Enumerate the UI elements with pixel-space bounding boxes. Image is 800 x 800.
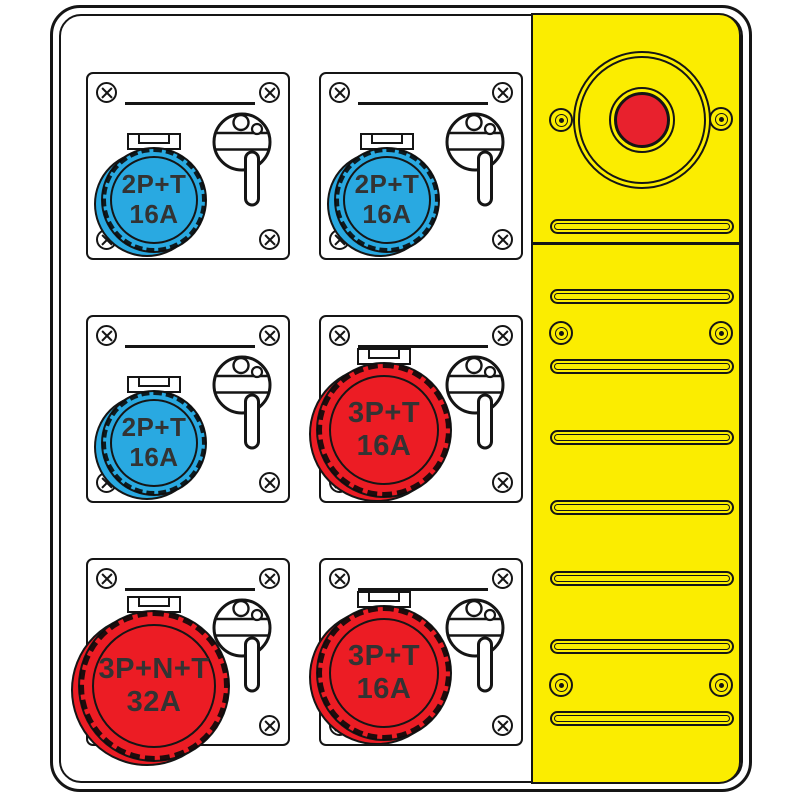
socket-face-label: 2P+T 16A — [343, 156, 431, 244]
vent-slot-inner — [554, 575, 730, 582]
cee-socket: 3P+T 16A — [316, 605, 452, 741]
plate-divider-line — [358, 102, 488, 105]
cee-socket: 2P+T 16A — [101, 390, 207, 496]
rivet-icon — [549, 321, 573, 345]
screw-icon — [96, 82, 117, 103]
socket-face-label: 3P+T 16A — [329, 375, 439, 485]
cee-socket: 3P+T 16A — [316, 362, 452, 498]
interlock-switch-icon — [207, 353, 277, 465]
vent-slot — [550, 430, 734, 445]
vent-slot-inner — [554, 293, 730, 300]
socket-module-top-left: 2P+T 16A — [86, 72, 290, 260]
vent-slot — [550, 500, 734, 515]
socket-face-label: 3P+T 16A — [329, 618, 439, 728]
vent-slot — [550, 571, 734, 586]
socket-rating-line2: 32A — [127, 686, 182, 719]
socket-rating-line2: 16A — [129, 200, 178, 230]
screw-icon — [259, 325, 280, 346]
screw-icon — [259, 568, 280, 589]
vent-slot — [550, 219, 734, 234]
socket-mount-tab-inner — [138, 135, 170, 144]
socket-rating-line1: 3P+N+T — [99, 653, 210, 686]
cee-socket: 2P+T 16A — [101, 147, 207, 253]
cee-socket: 2P+T 16A — [334, 147, 440, 253]
screw-icon — [492, 325, 513, 346]
socket-module-bottom-left: 3P+N+T 32A — [86, 558, 290, 746]
vent-slot-inner — [554, 504, 730, 511]
panel-divider-line — [533, 242, 739, 245]
interlock-switch-icon — [207, 110, 277, 222]
vent-slot — [550, 289, 734, 304]
vent-slot-inner — [554, 715, 730, 722]
screw-icon — [492, 229, 513, 250]
screw-icon — [259, 82, 280, 103]
cee-socket: 3P+N+T 32A — [78, 610, 230, 762]
socket-mount-tab-inner — [138, 378, 170, 387]
socket-face-label: 2P+T 16A — [110, 156, 198, 244]
plate-divider-line — [125, 588, 255, 591]
screw-icon — [492, 472, 513, 493]
screw-icon — [96, 325, 117, 346]
rivet-icon — [709, 107, 733, 131]
screw-icon — [329, 82, 350, 103]
rivet-icon — [709, 321, 733, 345]
socket-module-bottom-right: 3P+T 16A — [319, 558, 523, 746]
screw-icon — [259, 229, 280, 250]
socket-rating-line1: 2P+T — [355, 170, 420, 200]
socket-rating-line1: 3P+T — [348, 640, 420, 673]
socket-mount-tab-inner — [371, 135, 403, 144]
screw-icon — [492, 82, 513, 103]
socket-rating-line2: 16A — [357, 430, 412, 463]
screw-icon — [96, 568, 117, 589]
screw-icon — [492, 715, 513, 736]
socket-module-middle-right: 3P+T 16A — [319, 315, 523, 503]
vent-slot — [550, 359, 734, 374]
plate-divider-line — [125, 102, 255, 105]
vent-slot-inner — [554, 223, 730, 230]
vent-slot-inner — [554, 643, 730, 650]
screw-icon — [329, 325, 350, 346]
rivet-icon — [549, 108, 573, 132]
socket-module-top-right: 2P+T 16A — [319, 72, 523, 260]
socket-rating-line2: 16A — [129, 443, 178, 473]
socket-mount-tab-inner — [368, 593, 400, 602]
socket-rating-line1: 2P+T — [122, 170, 187, 200]
screw-icon — [259, 715, 280, 736]
vent-slot-inner — [554, 434, 730, 441]
socket-rating-line2: 16A — [357, 673, 412, 706]
socket-mount-tab-inner — [138, 598, 170, 607]
screw-icon — [259, 472, 280, 493]
socket-face-label: 3P+N+T 32A — [92, 624, 216, 748]
vent-slot — [550, 711, 734, 726]
plate-divider-line — [125, 345, 255, 348]
screw-icon — [329, 568, 350, 589]
socket-rating-line2: 16A — [362, 200, 411, 230]
rivet-icon — [709, 673, 733, 697]
socket-rating-line1: 3P+T — [348, 397, 420, 430]
screw-icon — [492, 568, 513, 589]
socket-module-middle-left: 2P+T 16A — [86, 315, 290, 503]
rivet-icon — [549, 673, 573, 697]
vent-slot-inner — [554, 363, 730, 370]
interlock-switch-icon — [440, 110, 510, 222]
socket-mount-tab-inner — [368, 350, 400, 359]
emergency-stop-button — [614, 92, 670, 148]
side-panel — [531, 13, 741, 784]
socket-face-label: 2P+T 16A — [110, 399, 198, 487]
socket-rating-line1: 2P+T — [122, 413, 187, 443]
vent-slot — [550, 639, 734, 654]
